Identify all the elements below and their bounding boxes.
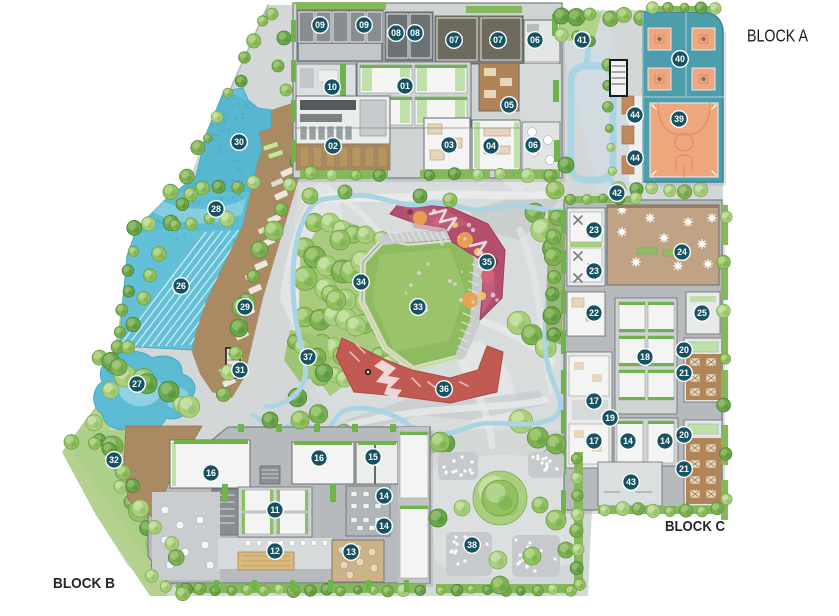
svg-text:17: 17 [589,396,599,406]
svg-text:07: 07 [493,35,503,45]
svg-text:35: 35 [482,257,492,267]
svg-text:14: 14 [379,491,389,501]
svg-text:01: 01 [400,81,410,91]
svg-text:06: 06 [530,35,540,45]
svg-text:21: 21 [679,464,689,474]
svg-text:23: 23 [589,225,599,235]
svg-text:17: 17 [589,436,599,446]
svg-text:36: 36 [439,384,449,394]
svg-text:19: 19 [605,413,615,423]
svg-text:40: 40 [675,54,685,64]
svg-text:43: 43 [626,477,636,487]
svg-text:26: 26 [176,281,186,291]
svg-text:23: 23 [589,266,599,276]
svg-text:08: 08 [410,28,420,38]
svg-text:03: 03 [444,140,454,150]
svg-text:20: 20 [679,345,689,355]
svg-text:21: 21 [679,368,689,378]
svg-text:11: 11 [270,505,279,515]
svg-text:37: 37 [303,352,313,362]
svg-text:06: 06 [528,140,538,150]
svg-text:09: 09 [359,20,369,30]
svg-text:31: 31 [235,365,245,375]
svg-text:41: 41 [577,35,587,45]
svg-text:16: 16 [314,453,324,463]
svg-text:14: 14 [623,436,633,446]
svg-text:27: 27 [132,379,142,389]
svg-text:14: 14 [660,436,670,446]
svg-text:33: 33 [413,302,423,312]
svg-text:32: 32 [109,455,119,465]
svg-text:02: 02 [328,141,338,151]
svg-text:42: 42 [612,188,622,198]
svg-text:22: 22 [589,308,599,318]
svg-text:29: 29 [240,302,250,312]
svg-text:BLOCK A: BLOCK A [747,26,808,46]
svg-text:44: 44 [630,110,640,120]
svg-text:BLOCK C: BLOCK C [665,518,725,535]
svg-text:04: 04 [486,141,496,151]
svg-text:24: 24 [677,247,687,257]
svg-text:38: 38 [467,540,477,550]
svg-text:08: 08 [391,28,401,38]
svg-text:44: 44 [630,153,640,163]
svg-text:25: 25 [697,308,707,318]
svg-text:18: 18 [640,352,650,362]
svg-text:BLOCK B: BLOCK B [53,575,115,592]
svg-text:20: 20 [679,430,689,440]
svg-text:07: 07 [449,35,459,45]
svg-text:05: 05 [504,100,514,110]
svg-text:28: 28 [211,204,221,214]
svg-text:30: 30 [234,137,244,147]
svg-text:15: 15 [368,452,378,462]
svg-text:39: 39 [674,114,684,124]
svg-text:14: 14 [379,521,389,531]
svg-text:34: 34 [356,277,366,287]
svg-text:16: 16 [206,468,216,478]
svg-text:12: 12 [270,546,280,556]
svg-text:10: 10 [327,82,337,92]
svg-text:13: 13 [346,547,356,557]
svg-text:09: 09 [315,20,325,30]
